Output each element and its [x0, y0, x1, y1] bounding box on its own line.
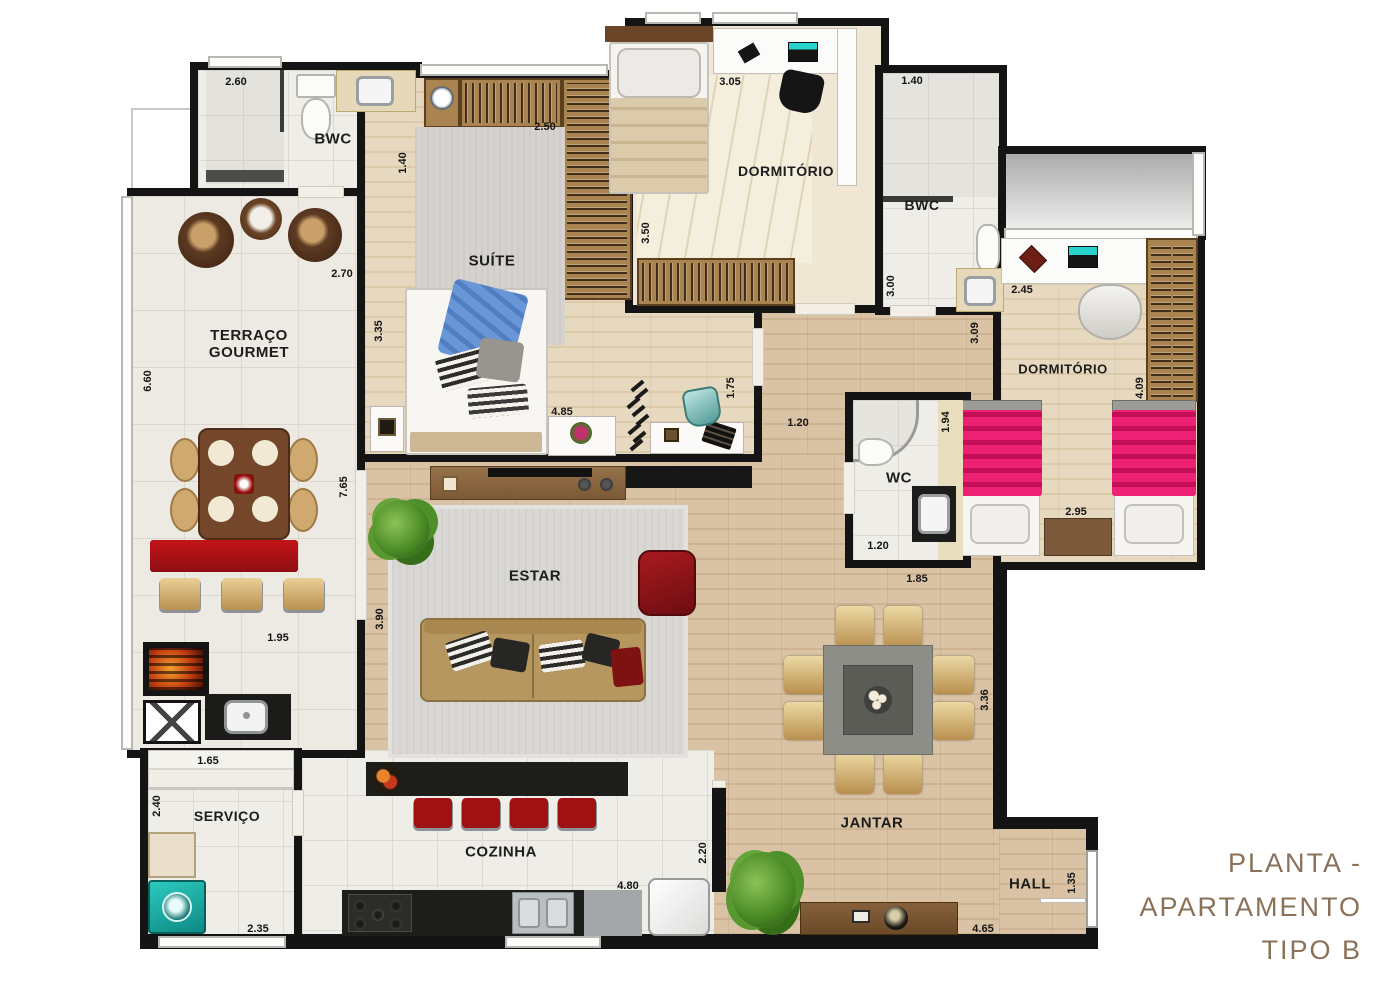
refrigerator: [648, 878, 710, 936]
decor-bowl: [240, 198, 282, 240]
plant: [372, 500, 430, 558]
dim-wc-below: 1.85: [906, 573, 927, 585]
bar-stool: [160, 578, 200, 610]
bar-counter: [150, 540, 298, 572]
room-label-bwc1: BWC: [314, 130, 351, 147]
sofa-back: [424, 620, 642, 634]
plant: [730, 852, 796, 928]
stove-burner: [354, 918, 366, 930]
room-label-jantar: JANTAR: [841, 814, 904, 831]
dim-cozinha-right: 2.20: [697, 842, 709, 863]
dim-estar-left: 3.90: [374, 608, 386, 629]
room-label-dorm2: DORMITÓRIO: [1018, 363, 1108, 378]
bed-pillow: [467, 383, 529, 418]
sofa-pillow: [610, 647, 644, 688]
floor-plan-canvas: BWC TERRAÇO GOURMET SUÍTE DORMITÓRIO BWC…: [0, 0, 1376, 983]
dim-terraco-left: 6.60: [142, 370, 154, 391]
dim-dorm2-bottom: 2.95: [1065, 506, 1086, 518]
plan-title-line2: APARTAMENTO: [1032, 886, 1362, 930]
door-suite: [752, 328, 764, 386]
terrace-dining-chair: [170, 438, 200, 482]
terrace-dining-chair: [288, 438, 318, 482]
decor-frame: [852, 910, 870, 923]
dim-suite-bottom: 4.85: [551, 406, 572, 418]
wardrobe: [637, 258, 795, 306]
counter-gray: [584, 890, 642, 936]
media-half-wall: [626, 466, 752, 488]
dim-wc-right: 1.94: [940, 411, 952, 432]
shelf-band: [148, 750, 294, 790]
floor-pouf: [288, 208, 342, 262]
plate: [208, 440, 234, 466]
dining-chair: [836, 606, 874, 648]
decor-frame: [664, 428, 679, 442]
laptop-icon: [1068, 246, 1098, 268]
toilet: [296, 74, 336, 98]
window: [208, 56, 282, 68]
wall-segment: [993, 560, 1007, 828]
toilet: [858, 438, 894, 466]
dim-dorm2-left: 3.09: [969, 322, 981, 343]
desk: [837, 28, 857, 186]
sofa-pillow: [490, 637, 531, 673]
plate: [252, 440, 278, 466]
centerpiece-flowers: [864, 686, 892, 714]
sink: [918, 494, 950, 534]
terrace-sliding-door: [355, 470, 367, 620]
dim-jantar-right: 3.36: [979, 689, 991, 710]
decor-flowers: [372, 764, 400, 794]
window: [505, 936, 601, 948]
sink-bowl: [546, 898, 568, 928]
window: [645, 12, 701, 24]
dining-chair: [932, 656, 974, 694]
door-bwc1: [298, 186, 344, 198]
bed-pillow: [617, 48, 701, 98]
plate: [208, 496, 234, 522]
stove-burner: [390, 900, 402, 912]
speaker-knob-icon: [600, 478, 613, 491]
centerpiece: [234, 474, 254, 494]
window: [712, 12, 798, 24]
shower-area: [883, 73, 999, 197]
terrace-dining-chair: [170, 488, 200, 532]
service-shaft: [143, 700, 201, 744]
dining-chair: [884, 606, 922, 648]
door-bwc2: [890, 305, 936, 317]
dining-chair: [836, 752, 874, 794]
dim-dorm1-width: 3.05: [719, 76, 740, 88]
dim-servico-left: 2.40: [151, 795, 163, 816]
stove-burner: [390, 918, 402, 930]
bar-stool: [284, 578, 324, 610]
dim-servico-top: 1.65: [197, 755, 218, 767]
kitchen-stool: [462, 798, 500, 828]
decor-bowl: [884, 906, 908, 930]
dim-dorm2-top: 2.45: [1011, 284, 1032, 296]
armchair-red: [638, 550, 696, 616]
sink-bowl: [518, 898, 540, 928]
bed-pillow: [970, 504, 1030, 544]
dim-bwc2-width: 1.40: [901, 75, 922, 87]
window: [158, 936, 286, 948]
plan-title-line3: TIPO B: [1032, 929, 1362, 973]
dim-servico-bottom: 2.35: [247, 923, 268, 935]
door-dorm1: [795, 303, 855, 315]
terrace-glass-rail: [121, 196, 133, 750]
dim-cozinha-bottom: 4.80: [617, 880, 638, 892]
decor-frame: [442, 476, 458, 492]
dim-wc-bottom: 1.20: [867, 540, 888, 552]
bed-pillow: [1124, 504, 1184, 544]
wall-segment: [993, 817, 1098, 829]
dim-dorm2-right: 4.09: [1134, 377, 1146, 398]
nightstand: [1044, 518, 1112, 556]
dim-terraco-top: 2.70: [331, 268, 352, 280]
monitor-icon: [788, 42, 818, 62]
dining-chair: [884, 752, 922, 794]
speaker-knob-icon: [578, 478, 591, 491]
stove-burner: [354, 900, 366, 912]
shower-glass: [280, 70, 284, 132]
sink: [356, 76, 394, 106]
dim-corridor: 1.20: [787, 417, 808, 429]
floor-pouf: [178, 212, 234, 268]
toilet: [976, 224, 1000, 272]
wall-segment: [712, 788, 726, 892]
dim-terraco-bottom: 1.95: [267, 632, 288, 644]
desk-chair: [1078, 284, 1142, 340]
building-edge: [131, 108, 197, 196]
dining-chair: [932, 702, 974, 740]
kitchen-stool: [558, 798, 596, 828]
bed-blanket: [611, 98, 707, 192]
dining-chair: [784, 702, 826, 740]
dim-suite-closet: 2.50: [534, 121, 555, 133]
flower-vase-icon: [570, 422, 592, 444]
door-servico: [292, 790, 304, 836]
cabinet: [148, 832, 196, 878]
tv-screen: [488, 468, 592, 477]
dim-terraco-right: 7.65: [338, 476, 350, 497]
room-label-suite: SUÍTE: [469, 252, 516, 269]
door-wc: [843, 462, 855, 514]
wardrobe: [1146, 238, 1198, 402]
kitchen-island: [366, 762, 628, 796]
shower-drain-strip: [206, 170, 284, 182]
window: [1192, 152, 1205, 236]
hall-sideboard: [800, 902, 958, 935]
bed-headboard: [605, 26, 713, 42]
room-label-servico: SERVIÇO: [194, 808, 260, 824]
plan-title: PLANTA - APARTAMENTO TIPO B: [1032, 842, 1362, 973]
bed-foot-bench: [410, 432, 542, 452]
kitchen-stool: [510, 798, 548, 828]
room-label-wc: WC: [886, 469, 912, 486]
dim-suite-door: 1.75: [725, 377, 737, 398]
dining-chair: [784, 656, 826, 694]
terrace-dining-chair: [288, 488, 318, 532]
room-label-dorm1: DORMITÓRIO: [738, 163, 834, 179]
dim-hall-bottom: 4.65: [972, 923, 993, 935]
barbecue-grill: [143, 642, 209, 696]
room-label-bwc2: BWC: [905, 197, 940, 213]
plan-title-line1: PLANTA -: [1032, 842, 1362, 886]
decor-frame: [378, 418, 396, 436]
dim-dorm1-depth: 3.50: [640, 222, 652, 243]
room-sacada: [998, 146, 1206, 240]
kitchen-stool: [414, 798, 452, 828]
dim-bwc1-depth: 1.40: [397, 152, 409, 173]
faucet-icon: [243, 712, 250, 719]
stove-burner: [372, 909, 384, 921]
desk: [713, 28, 857, 74]
room-label-estar: ESTAR: [509, 567, 561, 584]
washer-door-icon: [162, 892, 192, 922]
sink: [964, 276, 996, 306]
bed-pillow: [475, 337, 524, 383]
clock-icon: [430, 86, 454, 110]
sofa-seam: [532, 634, 534, 698]
bed-blanket-pink: [1112, 410, 1196, 496]
room-label-terraco: TERRAÇO GOURMET: [189, 327, 309, 362]
bar-stool: [222, 578, 262, 610]
room-label-cozinha: COZINHA: [465, 843, 537, 860]
dim-bwc2-depth: 3.00: [885, 275, 897, 296]
dim-suite-left: 3.35: [373, 320, 385, 341]
kitchen-pass-frame: [712, 780, 726, 788]
dim-bwc1-width: 2.60: [225, 76, 246, 88]
window: [420, 64, 608, 76]
plate: [252, 496, 278, 522]
bed-blanket-pink: [958, 410, 1042, 496]
